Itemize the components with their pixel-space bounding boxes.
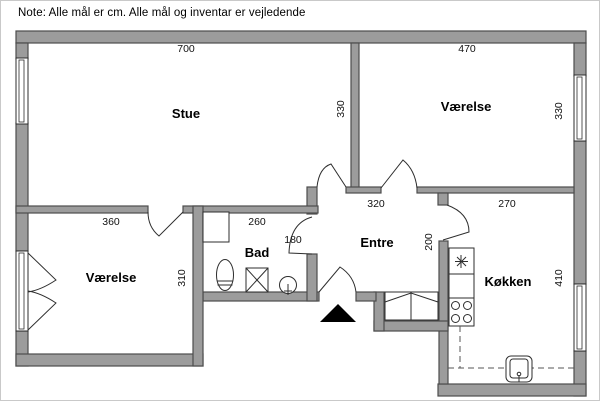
- dimension-label-200-10: 200: [423, 233, 435, 251]
- washing-machine-part-0: [203, 212, 229, 242]
- window-vaerelse-left-leaf-1: [28, 291, 56, 330]
- window-stue-left-glass: [19, 60, 24, 122]
- dimension-label-310-9: 310: [176, 269, 188, 287]
- counter-part-0: [449, 274, 474, 298]
- toilet-part-0: [217, 260, 234, 291]
- window-koekken-right-glass: [577, 286, 582, 349]
- washing-machine: [203, 212, 229, 242]
- window-vaerelse-left: [16, 251, 56, 331]
- room-label-koekken: Køkken: [485, 274, 532, 289]
- wall-entrance-right: [356, 292, 376, 301]
- toilet: [217, 260, 234, 291]
- door-vaerelse-left-arc: [148, 212, 183, 236]
- window-vaerelse-right-glass: [577, 77, 582, 139]
- wall-kitchen-left: [439, 241, 448, 384]
- wall-vaerelse-left-right: [193, 206, 203, 366]
- window-vaerelse-right: [574, 75, 586, 141]
- wall-kitchen-door-stub: [438, 193, 448, 205]
- wall-top: [16, 31, 586, 43]
- floor-plan-canvas: Note: Alle mål er cm. Alle mål og invent…: [0, 0, 600, 401]
- wall-left-middle: [16, 123, 28, 251]
- wall-entre-top-stub: [346, 187, 381, 193]
- fridge: [449, 248, 474, 274]
- stove-part-2: [464, 302, 472, 310]
- entrance-arrow: [320, 304, 356, 322]
- dimension-label-320-6: 320: [367, 198, 385, 210]
- wall-bad-bottom: [203, 292, 319, 301]
- dimension-label-330-2: 330: [335, 100, 347, 118]
- wall-step-horizontal: [374, 321, 448, 331]
- stove: [449, 298, 474, 326]
- door-koekken-arc: [443, 205, 469, 240]
- wall-bottom-left: [16, 354, 203, 366]
- window-stue-left: [16, 58, 28, 124]
- wall-entre-top-right: [417, 187, 574, 193]
- shower: [246, 268, 268, 292]
- dimension-label-260-5: 260: [248, 216, 266, 228]
- stove-part-1: [452, 302, 460, 310]
- room-label-stue: Stue: [172, 106, 200, 121]
- dimension-label-470-1: 470: [458, 43, 476, 55]
- dimension-label-700-0: 700: [177, 43, 195, 55]
- room-label-entre: Entre: [360, 235, 393, 250]
- wardrobe: [385, 292, 438, 320]
- wall-right-middle: [574, 141, 586, 284]
- window-koekken-right: [574, 284, 586, 351]
- floor-plan-drawing: 700470330330360260320270180310200410Stue…: [1, 1, 600, 401]
- dimension-label-180-8: 180: [284, 234, 302, 246]
- wall-divider-stue-vaerelse: [351, 43, 359, 188]
- wall-right-upper: [574, 43, 586, 76]
- wall-bottom-kitchen: [438, 384, 586, 396]
- window-vaerelse-left-leaf-0: [28, 253, 56, 292]
- door-entrance-arc: [319, 267, 356, 292]
- wall-stue-bottom-a: [16, 206, 148, 213]
- room-label-bad: Bad: [245, 245, 270, 260]
- stove-part-3: [452, 315, 460, 323]
- window-vaerelse-left-glass: [19, 253, 24, 329]
- stove-part-4: [464, 315, 472, 323]
- dimension-label-360-4: 360: [102, 216, 120, 228]
- door-vaerelse-top-arc: [381, 160, 417, 188]
- wall-bad-right-lower: [307, 254, 317, 301]
- sink-koekken: [506, 356, 532, 382]
- dimension-label-330-3: 330: [553, 102, 565, 120]
- door-stue-arc: [317, 164, 346, 187]
- dimension-label-410-11: 410: [553, 269, 565, 287]
- dimension-label-270-7: 270: [498, 198, 516, 210]
- counter: [449, 274, 474, 298]
- room-label-vaerelse-top: Værelse: [441, 99, 492, 114]
- wall-left-upper: [16, 43, 28, 59]
- room-label-vaerelse-left: Værelse: [86, 270, 137, 285]
